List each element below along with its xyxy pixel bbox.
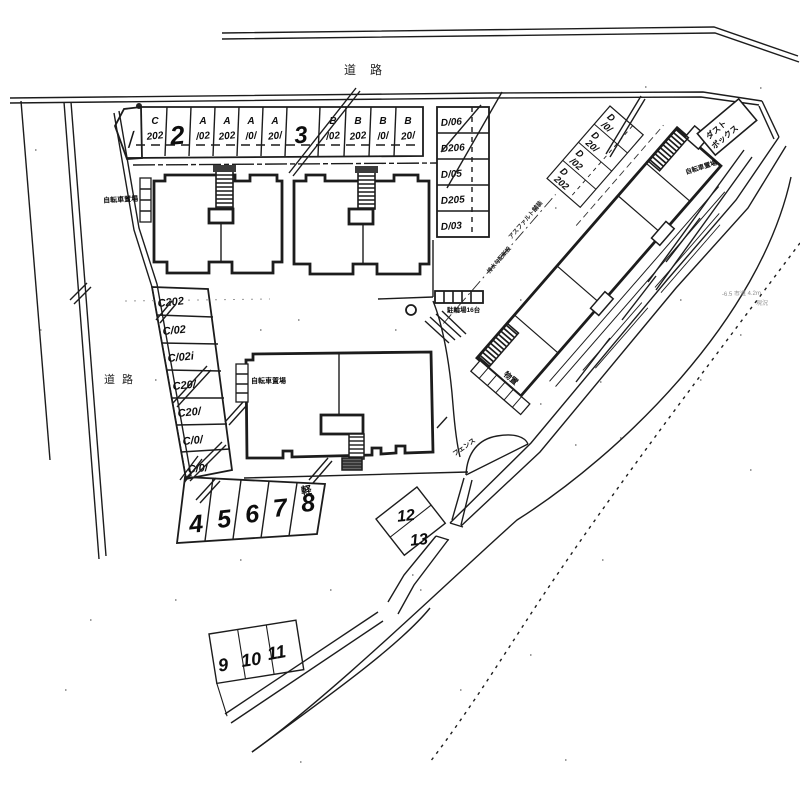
svg-text:10: 10 bbox=[240, 648, 263, 671]
svg-text:自転車置場: 自転車置場 bbox=[251, 376, 286, 385]
svg-text:A: A bbox=[222, 116, 230, 127]
svg-text:C/0/: C/0/ bbox=[182, 434, 205, 448]
svg-text:A: A bbox=[270, 116, 278, 127]
svg-text:11: 11 bbox=[266, 641, 288, 664]
svg-text:D/03: D/03 bbox=[440, 220, 462, 232]
svg-text:20/: 20/ bbox=[267, 130, 284, 143]
svg-text:202: 202 bbox=[348, 130, 367, 143]
svg-text:C: C bbox=[151, 116, 159, 127]
svg-text:道路: 道路 bbox=[344, 62, 396, 77]
svg-text:/02: /02 bbox=[195, 130, 211, 143]
svg-text:12: 12 bbox=[396, 507, 416, 526]
svg-text:A: A bbox=[246, 116, 254, 127]
svg-text:駐輪場16台: 駐輪場16台 bbox=[447, 305, 481, 314]
svg-text:B: B bbox=[404, 116, 411, 127]
svg-text:D/06: D/06 bbox=[440, 116, 462, 128]
svg-text:C/02: C/02 bbox=[162, 324, 186, 338]
svg-text:A: A bbox=[198, 116, 206, 127]
svg-text:道路: 道路 bbox=[104, 372, 140, 386]
svg-text:202: 202 bbox=[145, 130, 164, 143]
svg-text:202: 202 bbox=[217, 130, 236, 143]
svg-text:B: B bbox=[354, 116, 361, 127]
svg-text:20/: 20/ bbox=[400, 130, 417, 143]
svg-text:13: 13 bbox=[409, 531, 429, 550]
svg-text:4: 4 bbox=[187, 510, 205, 539]
svg-text:2: 2 bbox=[168, 120, 187, 151]
svg-text:D205: D205 bbox=[440, 194, 465, 207]
svg-text:現況: 現況 bbox=[756, 299, 768, 307]
svg-text:B: B bbox=[379, 116, 386, 127]
